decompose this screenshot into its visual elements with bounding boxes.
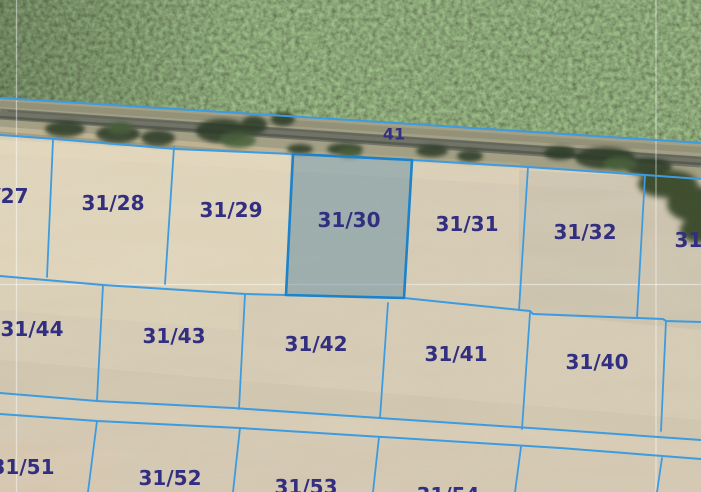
parcel-31-32[interactable] bbox=[519, 167, 645, 318]
parcel-31-30[interactable] bbox=[286, 154, 412, 298]
parcel-31-28[interactable] bbox=[47, 140, 174, 284]
parcel-31-33[interactable] bbox=[637, 175, 701, 322]
parcel-31-29[interactable] bbox=[165, 147, 293, 295]
parcel-31-31[interactable] bbox=[404, 160, 528, 310]
parcel-31-41[interactable] bbox=[380, 303, 530, 429]
parcel-31-53[interactable] bbox=[233, 428, 379, 492]
parcel-31-42[interactable] bbox=[239, 294, 388, 418]
map-canvas: 41 31/27 31/28 31/29 31/30 31/31 31/32 3… bbox=[0, 0, 701, 492]
parcel-31-52[interactable] bbox=[88, 421, 240, 492]
parcel-31-27[interactable] bbox=[0, 135, 53, 277]
parcel-31-40[interactable] bbox=[522, 313, 666, 431]
parcel-31-51[interactable] bbox=[0, 414, 97, 492]
parcel-31-44[interactable] bbox=[0, 276, 103, 400]
parcel-31-43[interactable] bbox=[97, 285, 245, 409]
map-viewport[interactable]: 41 31/27 31/28 31/29 31/30 31/31 31/32 3… bbox=[0, 0, 701, 492]
